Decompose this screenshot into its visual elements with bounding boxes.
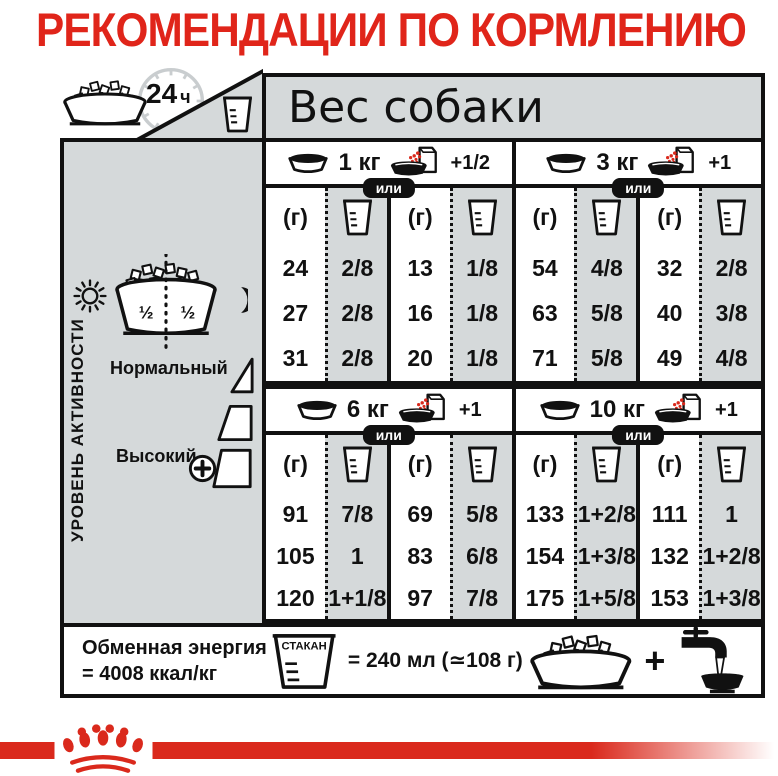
grams-value: 133 xyxy=(516,493,575,535)
measuring-cup-icon xyxy=(590,444,623,485)
subtable-6kg-drywet: (г) 69 83 97 5/8 6/8 7/8 xyxy=(387,435,512,619)
cup-value: 3/8 xyxy=(702,291,761,336)
weight-table-bottom: 6 кг +1 или 10 кг +1 или (г) 91 105 120 xyxy=(262,385,765,623)
or-tab: или xyxy=(363,425,415,445)
activity-level-normal: Нормальный xyxy=(110,358,228,379)
weight-label: 1 кг xyxy=(338,149,380,177)
glass-cup-icon: СТАКАН xyxy=(270,630,338,692)
cup-value: 2/8 xyxy=(328,336,387,381)
weight-label: 6 кг xyxy=(347,396,389,424)
dry-bowl-icon xyxy=(287,151,329,175)
water-tap-icon xyxy=(671,625,751,697)
grams-header: (г) xyxy=(516,435,575,493)
cup-value: 5/8 xyxy=(577,291,636,336)
grams-value: 40 xyxy=(640,291,699,336)
wet-add-label: +1 xyxy=(708,152,731,175)
grams-value: 49 xyxy=(640,336,699,381)
cup-value: 7/8 xyxy=(328,493,387,535)
weight-label: 10 кг xyxy=(590,396,645,424)
grams-value: 111 xyxy=(640,493,699,535)
grams-header: (г) xyxy=(266,188,325,246)
grams-value: 91 xyxy=(266,493,325,535)
plus-sign: + xyxy=(644,640,665,682)
energy-line-2: = 4008 ккал/кг xyxy=(82,661,270,687)
grams-header: (г) xyxy=(266,435,325,493)
dry-bowl-icon xyxy=(545,151,587,175)
measuring-cup-icon xyxy=(341,197,374,238)
subtable-3kg-dry: (г) 54 63 71 4/8 5/8 5/8 xyxy=(512,188,637,381)
cup-value: 1 xyxy=(328,535,387,577)
grams-value: 13 xyxy=(391,246,450,291)
dog-weight-header: Вес собаки xyxy=(262,73,765,138)
grams-value: 153 xyxy=(640,577,699,619)
dog-weight-label: Вес собаки xyxy=(288,82,544,133)
wet-add-label: +1 xyxy=(459,399,482,422)
crown-logo xyxy=(50,724,156,776)
footer-info-band: Обменная энергия = 4008 ккал/кг СТАКАН =… xyxy=(60,623,765,698)
cup-value: 1+5/8 xyxy=(577,577,636,619)
grams-value: 105 xyxy=(266,535,325,577)
or-tab: или xyxy=(612,425,664,445)
half-left: ½ xyxy=(139,303,154,323)
dry-bowl-icon xyxy=(539,398,581,422)
or-tab: или xyxy=(363,178,415,198)
group-header-3kg: 3 кг +1 или xyxy=(512,142,762,184)
sun-icon xyxy=(70,276,110,316)
grams-value: 132 xyxy=(640,535,699,577)
wet-food-icon xyxy=(390,144,442,182)
cup-value: 1/8 xyxy=(453,336,512,381)
metabolizable-energy: Обменная энергия = 4008 ккал/кг xyxy=(82,635,270,687)
cup-value: 1+3/8 xyxy=(577,535,636,577)
weight-label: 3 кг xyxy=(596,149,638,177)
cup-value: 1/8 xyxy=(453,246,512,291)
energy-line-1: Обменная энергия xyxy=(82,635,270,661)
cup-value: 1+1/8 xyxy=(328,577,387,619)
cup-value: 2/8 xyxy=(328,246,387,291)
activity-step-1-icon xyxy=(230,356,255,395)
wet-add-label: +1 xyxy=(715,399,738,422)
half-ration-bowl-icon: ½ ½ xyxy=(108,254,224,352)
grams-value: 63 xyxy=(516,291,575,336)
grams-value: 83 xyxy=(391,535,450,577)
activity-axis-label: УРОВЕНЬ АКТИВНОСТИ xyxy=(68,300,88,542)
kibble-bowl-icon xyxy=(523,629,639,693)
activity-level-high: Высокий xyxy=(116,446,197,467)
subtable-10kg-drywet: (г) 111 132 153 1 1+2/8 1+3/8 xyxy=(636,435,761,619)
grams-value: 175 xyxy=(516,577,575,619)
grams-value: 27 xyxy=(266,291,325,336)
cup-value: 2/8 xyxy=(702,246,761,291)
page-title: РЕКОМЕНДАЦИИ ПО КОРМЛЕНИЮ xyxy=(36,2,746,57)
measuring-cup-icon xyxy=(715,444,748,485)
subtable-10kg-dry: (г) 133 154 175 1+2/8 1+3/8 1+5/8 xyxy=(512,435,637,619)
half-right: ½ xyxy=(181,303,196,323)
glass-label: СТАКАН xyxy=(281,640,326,652)
group-header-1kg: 1 кг +1/2 или xyxy=(266,142,512,184)
cup-value: 5/8 xyxy=(453,493,512,535)
cup-value: 6/8 xyxy=(453,535,512,577)
subtable-1kg-drywet: (г) 13 16 20 1/8 1/8 1/8 xyxy=(387,188,512,381)
subtable-1kg-dry: (г) 24 27 31 2/8 2/8 2/8 xyxy=(266,188,387,381)
cup-value: 1/8 xyxy=(453,291,512,336)
measuring-cup-icon xyxy=(715,197,748,238)
measuring-cup-icon xyxy=(466,197,499,238)
cup-value: 1 xyxy=(702,493,761,535)
cup-value: 5/8 xyxy=(577,336,636,381)
grams-value: 69 xyxy=(391,493,450,535)
wet-food-icon xyxy=(647,144,699,182)
wet-food-icon xyxy=(654,391,706,429)
measuring-cup-icon xyxy=(221,94,254,135)
group-header-10kg: 10 кг +1 или xyxy=(512,389,762,431)
grams-value: 97 xyxy=(391,577,450,619)
cup-value: 1+2/8 xyxy=(577,493,636,535)
grams-value: 54 xyxy=(516,246,575,291)
subtable-3kg-drywet: (г) 32 40 49 2/8 3/8 4/8 xyxy=(636,188,761,381)
cup-value: 2/8 xyxy=(328,291,387,336)
grams-value: 154 xyxy=(516,535,575,577)
grams-value: 24 xyxy=(266,246,325,291)
plus-circle-icon xyxy=(186,452,219,485)
subtable-6kg-dry: (г) 91 105 120 7/8 1 1+1/8 xyxy=(266,435,387,619)
cup-equivalent: = 240 мл (≃108 г) xyxy=(348,648,523,673)
grams-header: (г) xyxy=(516,188,575,246)
dry-bowl-icon xyxy=(296,398,338,422)
or-tab: или xyxy=(612,178,664,198)
moon-icon xyxy=(224,284,248,316)
cup-value: 4/8 xyxy=(577,246,636,291)
grams-value: 120 xyxy=(266,577,325,619)
feeding-guide-panel: РЕКОМЕНДАЦИИ ПО КОРМЛЕНИЮ 24 ч Вес собак… xyxy=(0,0,778,776)
measuring-cup-icon xyxy=(466,444,499,485)
grams-value: 31 xyxy=(266,336,325,381)
cup-value: 1+3/8 xyxy=(702,577,761,619)
measuring-cup-icon xyxy=(341,444,374,485)
cup-value: 7/8 xyxy=(453,577,512,619)
wet-add-label: +1/2 xyxy=(451,152,490,175)
grams-value: 71 xyxy=(516,336,575,381)
wet-food-icon xyxy=(398,391,450,429)
grams-value: 32 xyxy=(640,246,699,291)
weight-table-top: 1 кг +1/2 или 3 кг +1 или (г) 24 27 31 xyxy=(262,138,765,385)
activity-step-2-icon xyxy=(216,403,254,443)
grams-value: 16 xyxy=(391,291,450,336)
cup-value: 4/8 xyxy=(702,336,761,381)
group-header-6kg: 6 кг +1 или xyxy=(266,389,512,431)
measuring-cup-icon xyxy=(590,197,623,238)
grams-value: 20 xyxy=(391,336,450,381)
cup-value: 1+2/8 xyxy=(702,535,761,577)
activity-panel: УРОВЕНЬ АКТИВНОСТИ xyxy=(60,138,262,623)
